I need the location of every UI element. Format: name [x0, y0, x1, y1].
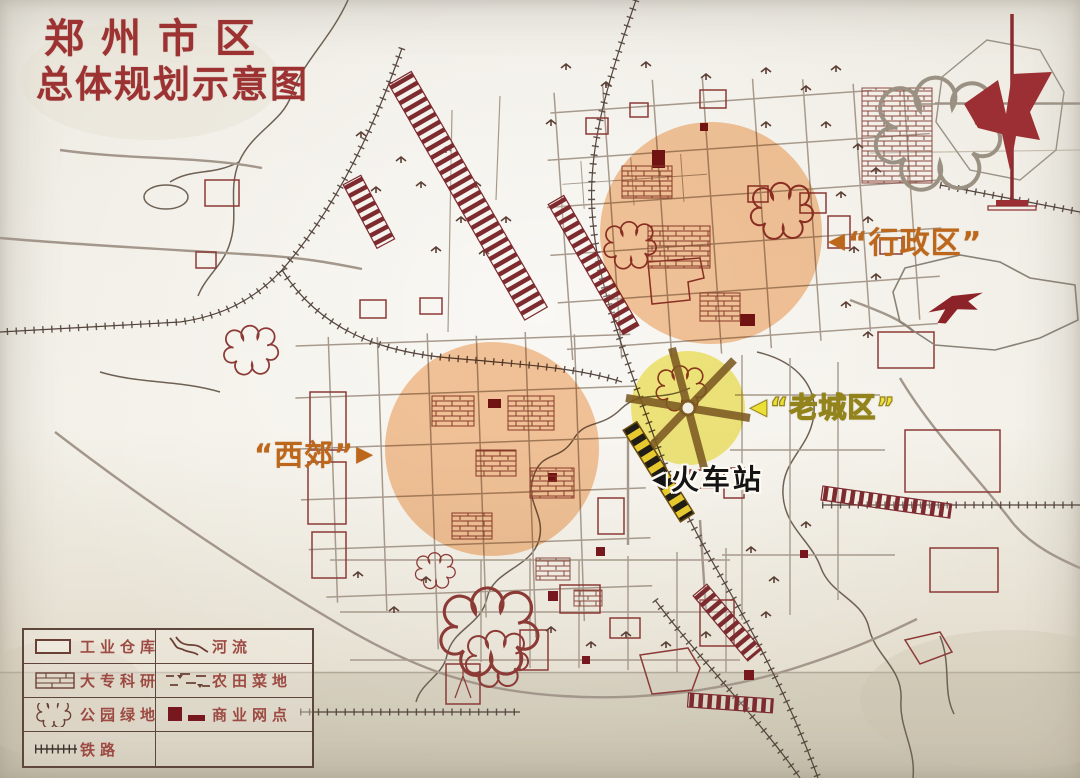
legend-item-railway: 铁路	[24, 732, 156, 766]
zone-admin-district	[600, 122, 822, 344]
legend-item-industrial-warehouse: 工业仓库	[24, 630, 156, 663]
legend-label: 农田菜地	[212, 670, 292, 691]
legend-row: 工业仓库 河流	[24, 630, 312, 664]
legend-item-commercial-outlets: 商业网点	[156, 698, 312, 731]
map-title-line2: 总体规划示意图	[36, 63, 309, 107]
college-research-icon	[32, 669, 80, 693]
map-title: 郑州市区 总体规划示意图	[36, 16, 309, 107]
annotation-train-station-text: 火车站	[671, 458, 764, 498]
legend-label: 工业仓库	[80, 636, 160, 657]
left-triangle-icon: ◀	[652, 469, 669, 490]
legend-row: 铁路	[24, 732, 312, 766]
commercial-outlets-icon	[164, 703, 212, 727]
right-triangle-icon: ▶	[356, 442, 374, 467]
legend-item-river: 河流	[156, 630, 312, 663]
map-photo: 郑州市区 总体规划示意图 ◀ “行政区” ◀ “老城区” “西郊” ▶ ◀ 火车…	[0, 0, 1080, 778]
annotation-admin-district-text: “行政区”	[848, 218, 982, 262]
legend-row: 大专科研 农田菜地	[24, 664, 312, 698]
airport	[893, 255, 1078, 350]
railway-icon	[32, 737, 80, 761]
legend-label: 商业网点	[212, 704, 292, 725]
annotation-old-town: ◀ “老城区”	[748, 386, 896, 426]
industrial-warehouse-icon	[32, 635, 80, 659]
legend-label: 大专科研	[80, 670, 160, 691]
left-triangle-icon: ◀	[750, 395, 768, 420]
legend-row: 公园绿地 商业网点	[24, 698, 312, 732]
annotation-old-town-text: “老城区”	[770, 386, 896, 426]
legend-label: 河流	[212, 636, 252, 657]
river-icon	[164, 635, 212, 659]
legend-label: 公园绿地	[80, 704, 160, 725]
annotation-west-suburb: “西郊” ▶	[254, 432, 376, 474]
map-title-line1: 郑州市区	[36, 16, 309, 63]
farmland-vegetable-icon	[164, 669, 212, 693]
zone-west-suburb	[385, 342, 599, 556]
legend-label: 铁路	[80, 739, 120, 760]
legend-empty-cell	[156, 732, 312, 766]
annotation-train-station: ◀ 火车站	[650, 458, 764, 498]
legend-item-farmland-vegetable: 农田菜地	[156, 664, 312, 697]
legend-item-park-greenspace: 公园绿地	[24, 698, 156, 731]
annotation-west-suburb-text: “西郊”	[254, 432, 354, 474]
annotation-admin-district: ◀ “行政区”	[826, 218, 982, 262]
park-greenspace-icon	[32, 703, 80, 727]
legend-box: 工业仓库 河流 大专科研 农田菜地	[22, 628, 314, 768]
left-triangle-icon: ◀	[828, 229, 846, 254]
legend-item-college-research: 大专科研	[24, 664, 156, 697]
airplane-icon	[926, 291, 987, 327]
